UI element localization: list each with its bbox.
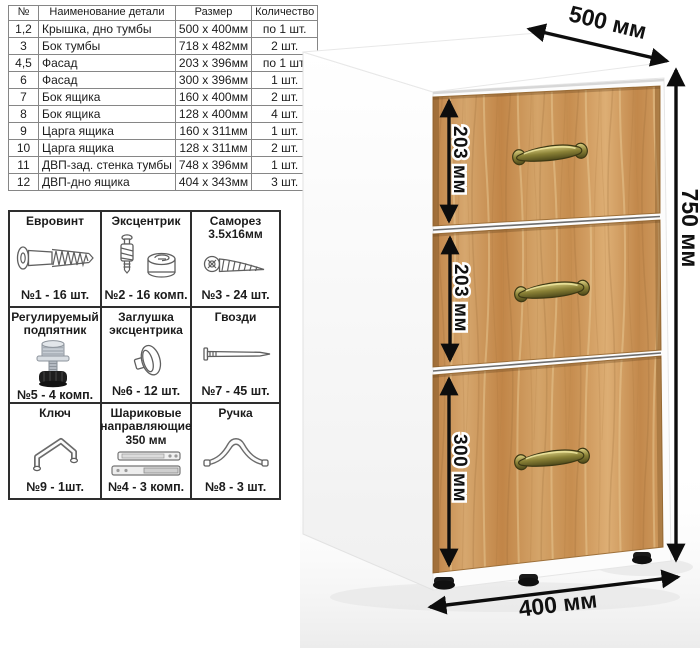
hardware-item-napravlyayushchie: Шариковые направляющие 350 мм №4 - 3 ком… — [101, 403, 191, 499]
col-header-num: № — [9, 6, 39, 21]
table-row: 10Царга ящика128 x 311мм2 шт. — [9, 140, 318, 157]
cabinet-side-panel — [303, 52, 433, 590]
table-row: 6Фасад300 x 396мм1 шт. — [9, 72, 318, 89]
cabinet-body — [303, 33, 671, 590]
table-row: 3Бок тумбы718 x 482мм2 шт. — [9, 38, 318, 55]
table-row: 1,2Крышка, дно тумбы500 x 400ммпо 1 шт. — [9, 21, 318, 38]
table-row: 11ДВП-зад. стенка тумбы748 x 396мм1 шт. — [9, 157, 318, 174]
nail-icon — [198, 340, 274, 368]
dimension-label-drawer1: 203 мм — [449, 126, 470, 194]
euro-screw-icon — [15, 237, 95, 279]
hardware-item-gvozdi: Гвозди №7 - 45 шт. — [191, 307, 280, 403]
table-row: 4,5Фасад203 x 396ммпо 1 шт. — [9, 55, 318, 72]
cam-cover-icon — [118, 338, 174, 384]
table-row: 8Бок ящика128 x 400мм4 шт. — [9, 106, 318, 123]
hardware-item-evrovint: Евровинт №1 - 16 шт. — [9, 211, 101, 307]
table-row: 7Бок ящика160 x 400мм2 шт. — [9, 89, 318, 106]
col-header-name: Наименование детали — [39, 6, 176, 21]
dimension-label-drawer2: 203 мм — [450, 264, 471, 332]
handle-icon — [201, 432, 271, 468]
assembly-sheet: № Наименование детали Размер Количество … — [0, 0, 700, 648]
col-header-size: Размер — [175, 6, 251, 21]
cabinet-illustration: 500 мм 750 мм 400 мм 203 мм 203 мм 300 м… — [300, 0, 700, 648]
table-row: 12ДВП-дно ящика404 x 343мм3 шт. — [9, 174, 318, 191]
adjustable-foot-icon — [27, 338, 83, 388]
dimension-label-depth: 500 мм — [567, 0, 650, 44]
screw-icon — [200, 247, 272, 283]
dimension-label-drawer3: 300 мм — [449, 434, 470, 502]
ball-slides-icon — [106, 448, 186, 480]
hardware-item-samorez: Саморез 3.5х16мм №3 - 24 шт. — [191, 211, 280, 307]
parts-table: № Наименование детали Размер Количество … — [8, 5, 318, 191]
hardware-item-zaglushka: Заглушка эксцентрика №6 - 12 шт. — [101, 307, 191, 403]
hardware-item-excentrik: Эксцентрик №2 - 16 комп. — [101, 211, 191, 307]
dimension-label-height: 750 мм — [677, 189, 700, 268]
hardware-item-podpyatnik: Регулируемый подпятник №5 - 4 комп. — [9, 307, 101, 403]
hex-key-icon — [24, 427, 86, 473]
hardware-grid: Евровинт №1 - 16 шт. Эксцентрик — [8, 210, 281, 500]
hardware-item-ruchka: Ручка №8 - 3 шт. — [191, 403, 280, 499]
cam-bolt-icon — [108, 233, 184, 283]
hardware-item-klyuch: Ключ №9 - 1шт. — [9, 403, 101, 499]
parts-table-header-row: № Наименование детали Размер Количество — [9, 6, 318, 21]
table-row: 9Царга ящика160 x 311мм1 шт. — [9, 123, 318, 140]
